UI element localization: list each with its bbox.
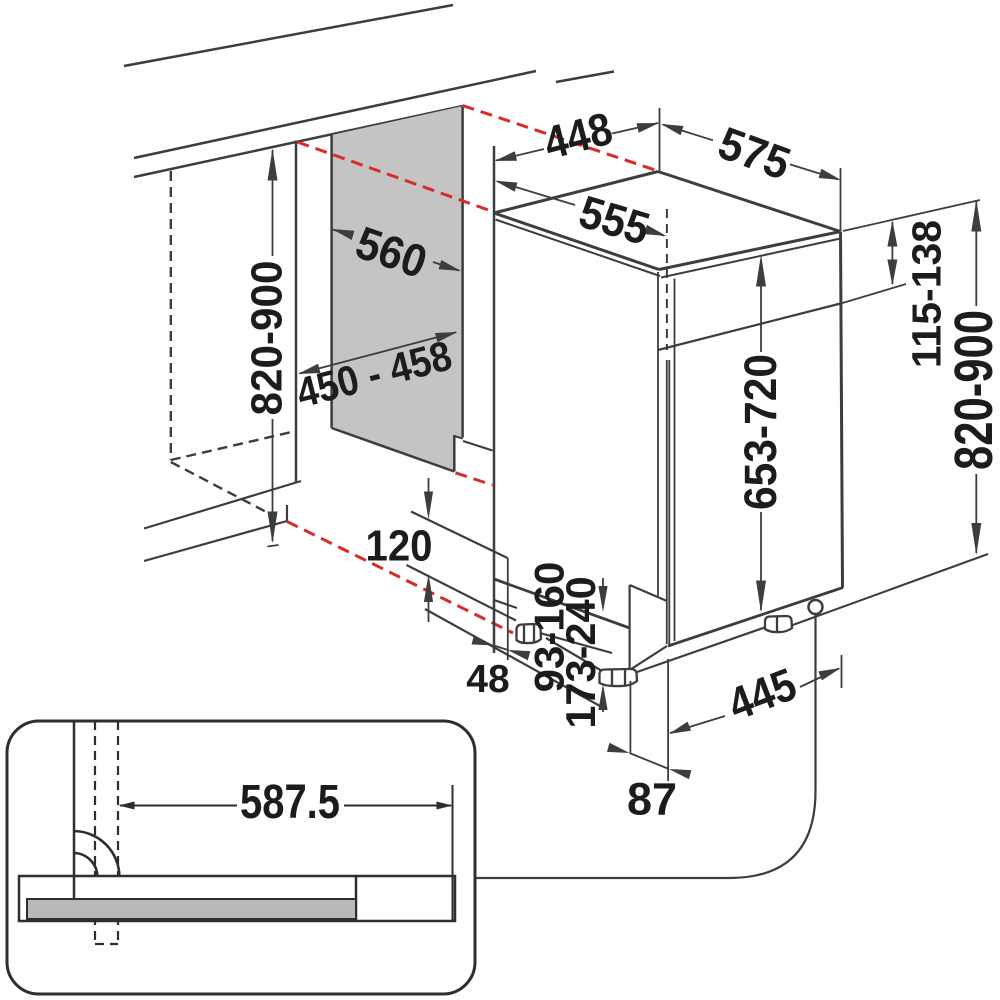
svg-text:575: 575 [712, 116, 797, 189]
svg-text:173-240: 173-240 [557, 576, 604, 728]
svg-text:653-720: 653-720 [735, 354, 786, 510]
svg-text:48: 48 [466, 658, 509, 701]
svg-text:587.5: 587.5 [240, 776, 340, 829]
svg-text:120: 120 [366, 522, 433, 571]
svg-text:448: 448 [539, 102, 618, 169]
svg-text:445: 445 [721, 658, 803, 731]
svg-text:87: 87 [627, 774, 677, 825]
svg-text:115-138: 115-138 [904, 220, 950, 368]
svg-text:820-900: 820-900 [244, 261, 292, 416]
svg-text:820-900: 820-900 [944, 310, 1000, 470]
